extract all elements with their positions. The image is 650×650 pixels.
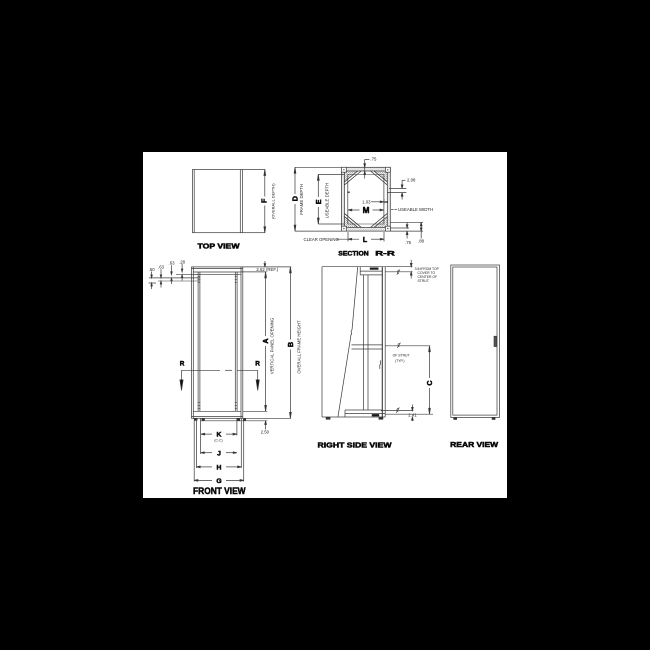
svg-text:.63: .63 (169, 261, 176, 266)
svg-text:1.03: 1.03 (362, 199, 371, 204)
svg-text:M: M (363, 206, 370, 215)
svg-text:CLEAR OPENING: CLEAR OPENING (304, 237, 340, 242)
svg-text:STRUT.: STRUT. (418, 279, 430, 283)
svg-text:J: J (217, 450, 221, 457)
svg-text:.75: .75 (370, 156, 377, 161)
svg-text:(TYP.): (TYP.) (395, 359, 404, 363)
svg-text:USEABLE DEPTH: USEABLE DEPTH (325, 183, 330, 219)
svg-text:(OVERALL DEPTH): (OVERALL DEPTH) (270, 183, 275, 219)
svg-text:C: C (425, 380, 434, 385)
svg-text:L: L (363, 237, 368, 244)
svg-text:.50: .50 (149, 267, 156, 272)
svg-text:2.41: 2.41 (408, 413, 417, 418)
svg-text:SECTION: SECTION (338, 251, 369, 258)
svg-text:FRAME DEPTH: FRAME DEPTH (299, 184, 304, 215)
svg-text:USEABLE WIDTH: USEABLE WIDTH (398, 207, 433, 212)
svg-text:(C-C): (C-C) (214, 439, 222, 443)
svg-text:REAR VIEW: REAR VIEW (450, 440, 499, 449)
svg-text:VERTICAL PANEL OPENING: VERTICAL PANEL OPENING (270, 317, 275, 374)
svg-text:R-R: R-R (375, 251, 395, 258)
svg-text:.75: .75 (405, 240, 412, 245)
svg-text:R: R (180, 360, 185, 367)
svg-text:G: G (216, 478, 221, 485)
svg-text:OF STRUT: OF STRUT (393, 354, 410, 358)
svg-text:TOP VIEW: TOP VIEW (198, 244, 240, 251)
svg-text:2.08: 2.08 (407, 178, 416, 183)
svg-text:.63: .63 (158, 265, 165, 270)
svg-text:OVERALL FRAME HEIGHT: OVERALL FRAME HEIGHT (296, 320, 301, 374)
svg-text:.88: .88 (418, 238, 425, 243)
svg-text:FRONT VIEW: FRONT VIEW (193, 485, 246, 496)
svg-text:R: R (255, 361, 260, 368)
svg-text:E: E (314, 199, 323, 204)
svg-text:F: F (259, 198, 268, 203)
svg-text:RIGHT SIDE VIEW: RIGHT SIDE VIEW (318, 441, 393, 450)
svg-text:H: H (217, 465, 222, 472)
svg-text:2.50: 2.50 (261, 429, 270, 434)
svg-text:2.62 (REF.): 2.62 (REF.) (256, 267, 278, 272)
svg-text:.28: .28 (179, 259, 186, 264)
svg-text:B: B (286, 342, 295, 347)
